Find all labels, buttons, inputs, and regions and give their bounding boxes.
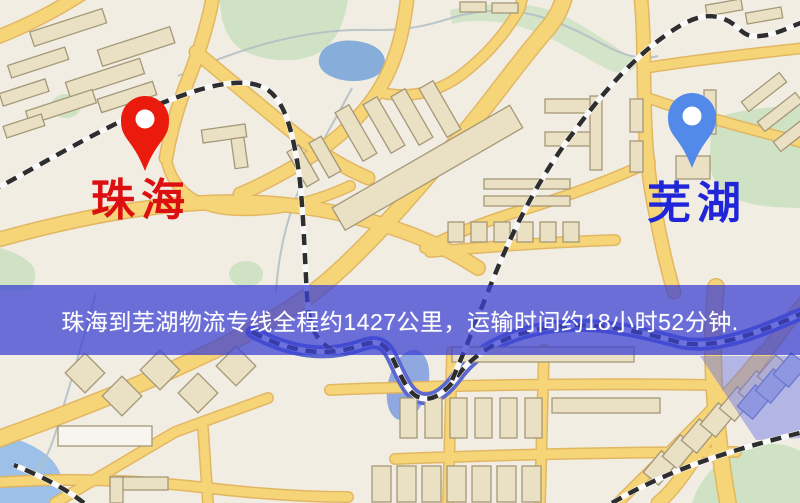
route-info-text: 珠海到芜湖物流专线全程约1427公里，运输时间约18小时52分钟.: [61, 303, 738, 337]
origin-label: 珠海: [91, 175, 191, 226]
route-info-banner: 珠海到芜湖物流专线全程约1427公里，运输时间约18小时52分钟.: [0, 285, 800, 355]
map-canvas: 珠海 芜湖: [0, 0, 800, 503]
destination-label: 芜湖: [647, 178, 747, 229]
map-screenshot: 珠海 芜湖 珠海到芜湖物流专线全程约1427公里，运输时间约18小时52分钟.: [0, 0, 800, 503]
